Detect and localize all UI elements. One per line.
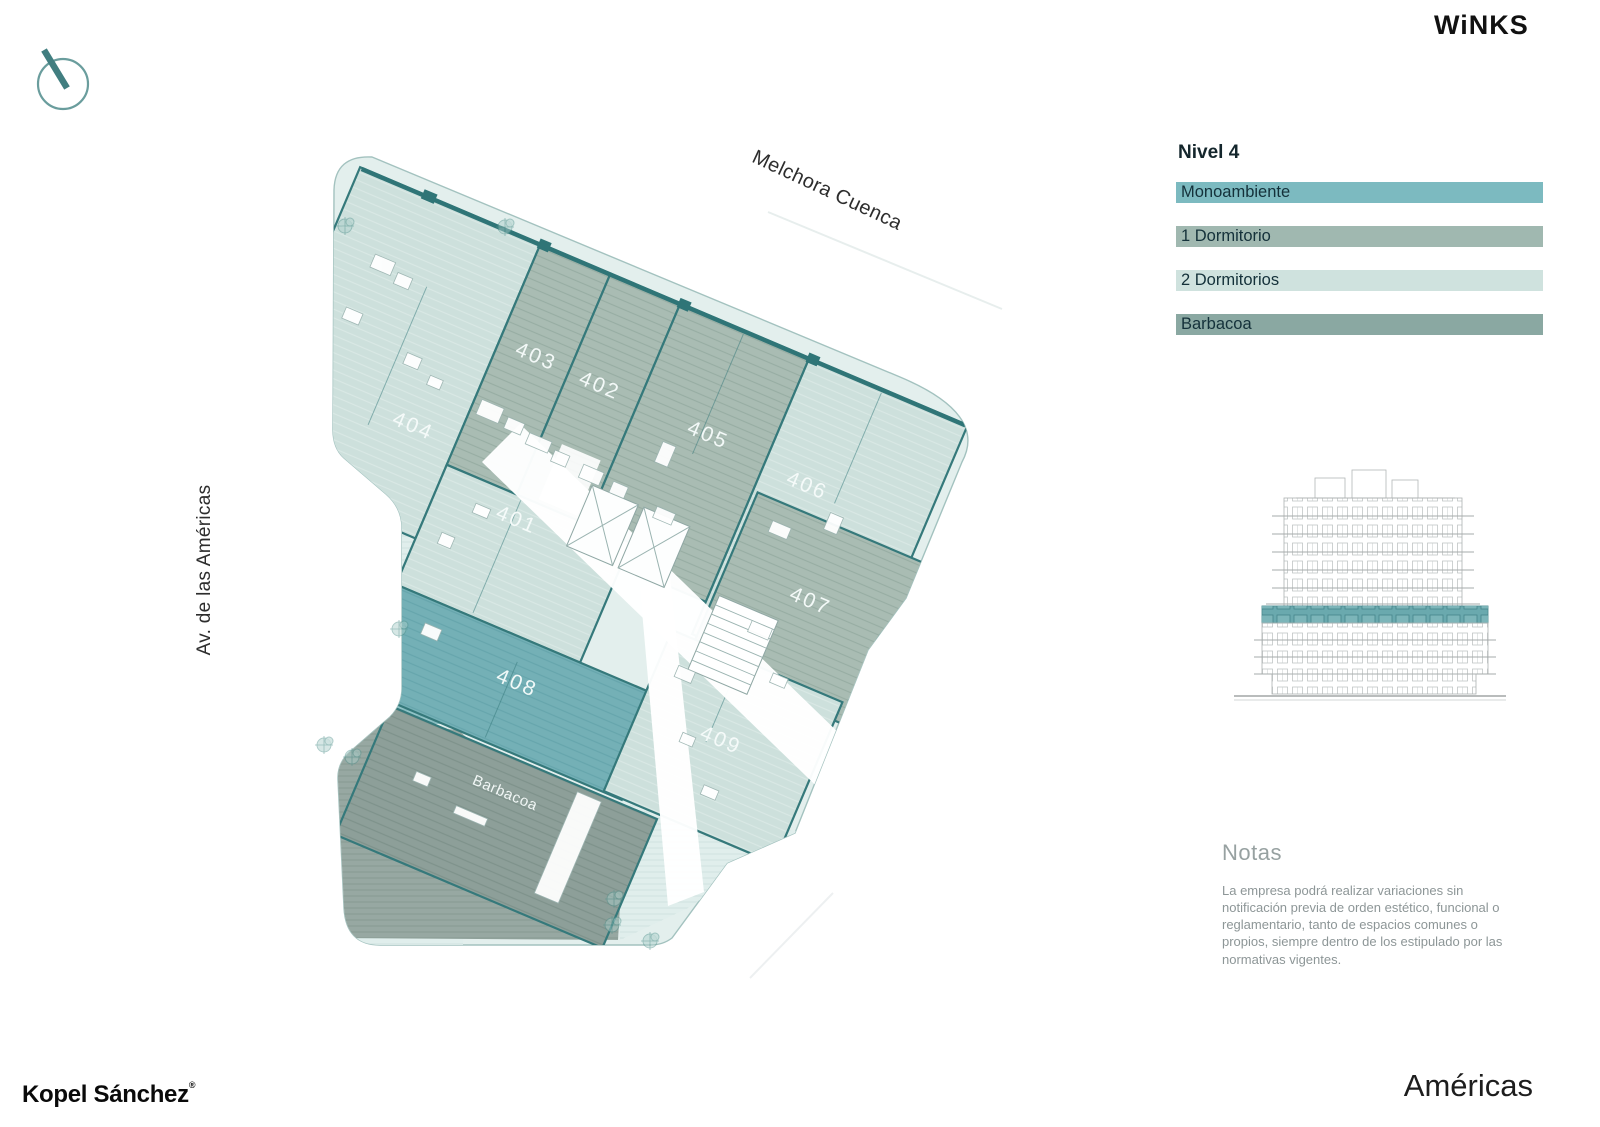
elevation-highlight-level [1262,606,1488,623]
project-title: Américas [1330,1068,1533,1104]
legend-item-barbacoa: Barbacoa [1176,314,1543,335]
curb-line-bottom [750,893,833,978]
street-label-av-americas: Av. de las Américas [194,459,220,681]
legend-item-2-dormitorios: 2 Dormitorios [1176,270,1543,291]
legend-item-monoambiente: Monoambiente [1176,182,1543,203]
winks-logo: WiNKS [1434,10,1529,41]
legend: Nivel 4 Monoambiente 1 Dormitorio 2 Dorm… [1176,142,1543,358]
notes-section: Notas La empresa podrá realizar variacio… [1222,840,1522,968]
floor-plan: 401 402 403 404 405 406 407 408 409 Barb… [280,120,1050,980]
registered-mark: ® [189,1080,195,1090]
brochure-page: WiNKS Melchora Cuenca Av. de las América… [0,0,1600,1127]
elevation-roof [1296,470,1455,498]
elevation-upper-floors [1266,498,1480,606]
building-elevation [1190,440,1530,710]
notes-body: La empresa podrá realizar variaciones si… [1222,882,1522,968]
curb-line-top [768,212,1002,309]
developer-logo: Kopel Sánchez® [22,1080,195,1109]
legend-title: Nivel 4 [1178,142,1543,164]
elevation-lower-floors [1254,623,1496,694]
legend-item-1-dormitorio: 1 Dormitorio [1176,226,1543,247]
notes-title: Notas [1222,840,1522,866]
elevation-ground-line [1234,696,1506,700]
developer-name: Kopel Sánchez [22,1081,189,1108]
north-arrow-icon [22,40,108,126]
